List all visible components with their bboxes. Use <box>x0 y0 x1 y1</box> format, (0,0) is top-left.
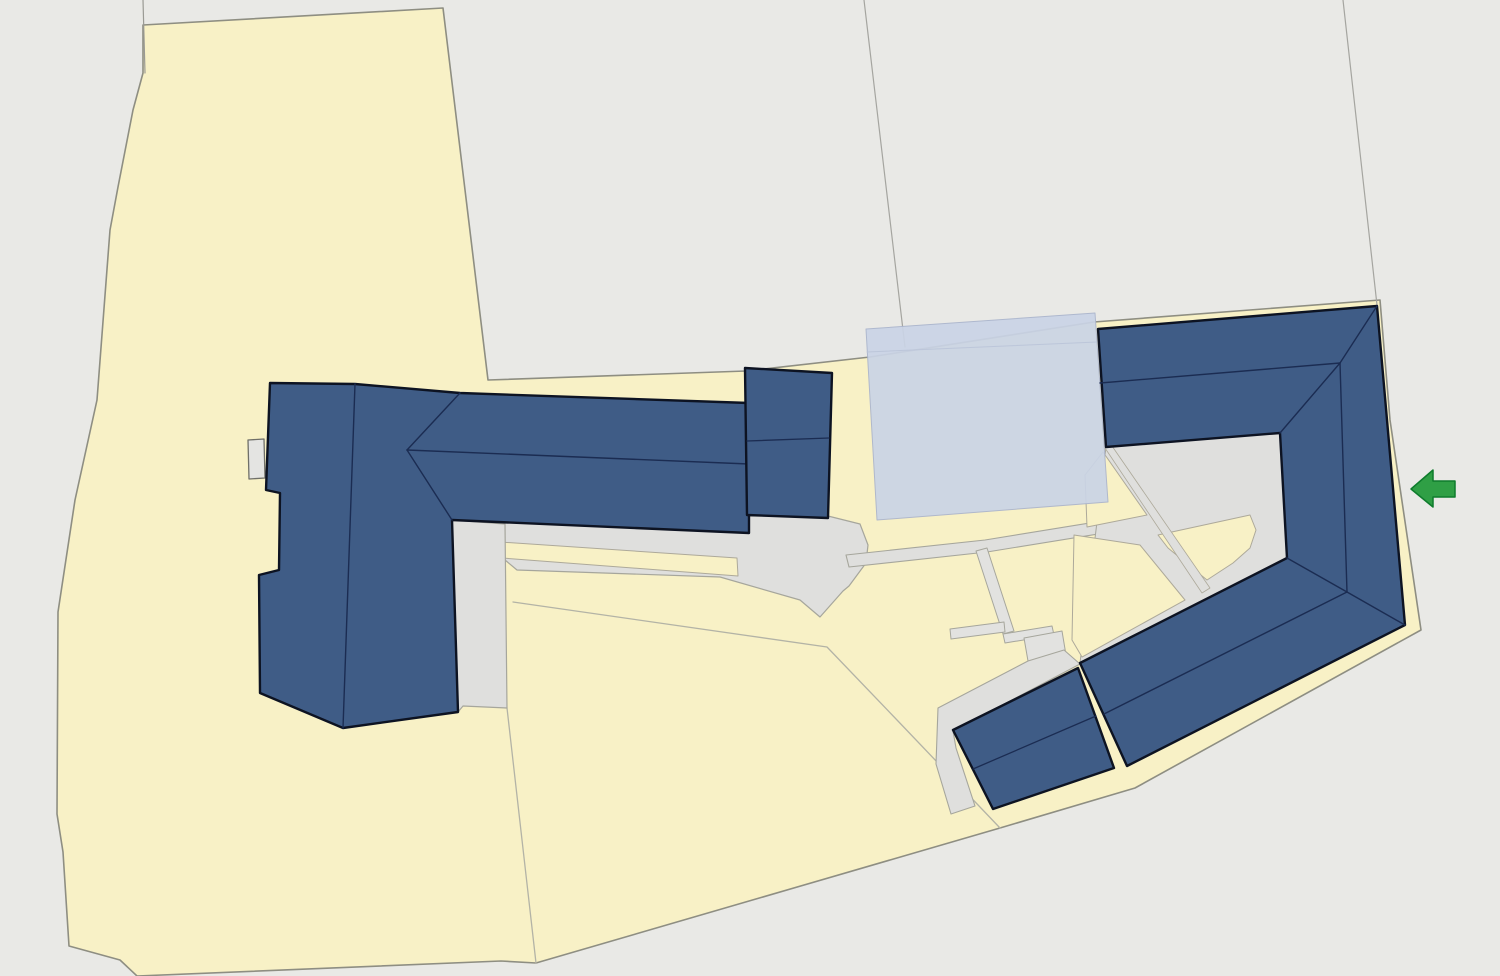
boundary-line-center <box>864 0 905 347</box>
planned-building-overlay <box>866 313 1108 520</box>
site-plan-svg <box>0 0 1500 976</box>
building-center-block <box>745 368 832 518</box>
paved-strip-southeast <box>452 520 507 712</box>
entrance-arrow <box>1411 470 1455 507</box>
boundary-line-east <box>1343 0 1377 305</box>
site-plan <box>0 0 1500 976</box>
annex-building-west <box>248 439 265 479</box>
